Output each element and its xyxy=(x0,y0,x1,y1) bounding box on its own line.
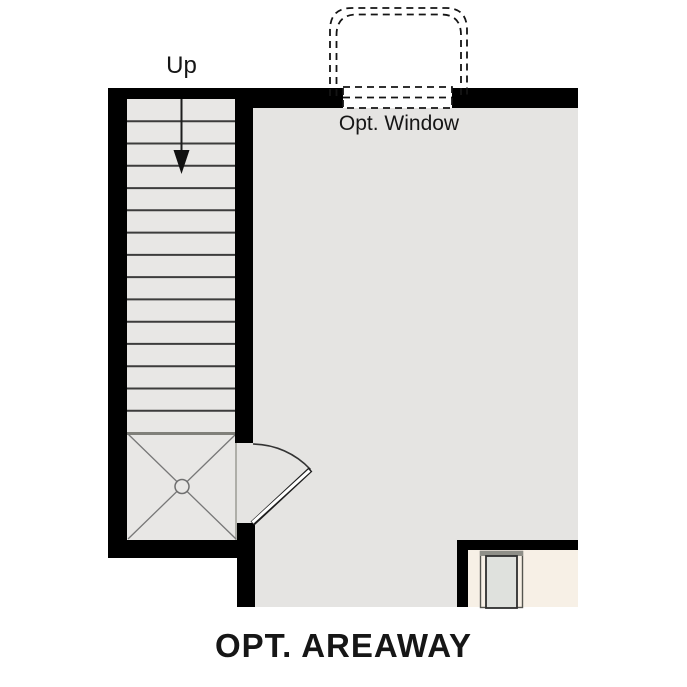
opt-window-label: Opt. Window xyxy=(323,112,475,136)
staircase xyxy=(127,95,237,540)
stairs-up-label: Up xyxy=(159,52,204,80)
plan-title: OPT. AREAWAY xyxy=(0,627,687,665)
opt-window-well xyxy=(330,8,467,96)
main-room xyxy=(237,95,578,607)
floor-plan-canvas: Up Opt. Window OPT. AREAWAY xyxy=(0,0,687,687)
door-frame xyxy=(480,551,523,608)
adjacent-room xyxy=(468,550,578,608)
floor-plan-drawing xyxy=(0,0,687,687)
opt-window-symbol xyxy=(343,87,452,108)
